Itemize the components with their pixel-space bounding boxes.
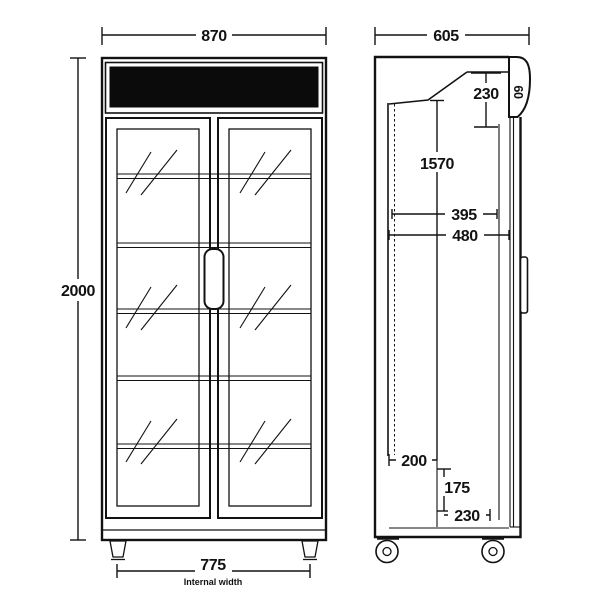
dim-front-height: 2000: [61, 283, 95, 300]
dim-side-canopy-height: 230: [473, 86, 499, 103]
castor-hub-front: [489, 548, 497, 556]
dim-side-base-height: 175: [444, 480, 470, 497]
fridge-dimension-diagram: 870 2000 775 Internal width: [0, 0, 600, 600]
front-foot-left: [110, 541, 126, 557]
dim-front-internal-width-label: Internal width: [184, 577, 243, 587]
dim-front-width: 870: [201, 28, 227, 45]
dim-side-internal-depth: 480: [452, 228, 478, 245]
side-top-duct-slope: [389, 72, 467, 104]
dim-side-glass-height: 1570: [420, 156, 454, 173]
dim-side-depth: 605: [433, 28, 459, 45]
front-foot-right: [302, 541, 318, 557]
dim-side-base-back: 200: [401, 453, 427, 470]
dim-side-canopy-depth: 60: [511, 85, 525, 99]
side-castors: [376, 539, 504, 563]
dim-side-shelf-depth: 395: [451, 207, 477, 224]
castor-hub-back: [383, 548, 391, 556]
dim-side-base-depth: 230: [454, 508, 480, 525]
front-door-handle: [205, 249, 224, 309]
side-dimensions: 605 230 60 1570 395 480 200: [375, 25, 529, 525]
side-door-handle: [521, 257, 528, 313]
technical-drawing-page: 870 2000 775 Internal width: [0, 0, 600, 600]
front-view: [102, 58, 326, 560]
front-header-panel: [110, 67, 319, 108]
dim-front-internal-width: 775: [200, 557, 226, 574]
